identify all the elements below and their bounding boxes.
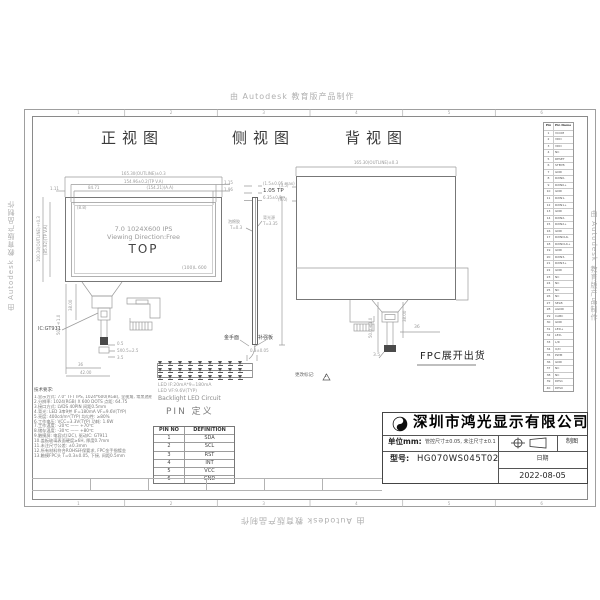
pin-number: 30: [544, 320, 554, 326]
led-icon: [228, 361, 233, 367]
pin-def-signal: RST: [185, 452, 234, 459]
pin-table-row: 20 RXIN3-: [544, 254, 573, 261]
led-icon: [158, 361, 163, 367]
pin-definition-table: PIN NO DEFINITION 1 SDA 2 SCL 3 RST: [153, 426, 235, 484]
zone-digit: 1: [32, 500, 125, 507]
pin-table-row: 33 L/R: [544, 339, 573, 346]
title-block-line: [498, 468, 587, 469]
dim-front-right-stub2: 1.96: [224, 188, 233, 192]
viewing-direction-text: Viewing Direction:Free: [65, 234, 222, 241]
pin-def-number: 3: [154, 452, 185, 459]
led-icon: [238, 368, 243, 374]
pin-name: GND: [554, 248, 573, 254]
led-icon: [188, 368, 193, 374]
pin-number: 21: [544, 261, 554, 267]
led-icon: [188, 361, 193, 367]
pin-def-row: 6 GND: [154, 475, 234, 483]
pin-table-row: 6 STBYB: [544, 162, 573, 169]
pin-number: 6: [544, 163, 554, 169]
dim-side-bottom: 0.3±0.05: [250, 349, 269, 353]
pin-name: PWM: [554, 353, 573, 359]
zone-digit: 4: [310, 109, 403, 116]
dim-back-left1: (3.5): [279, 184, 288, 188]
back-view-title: 背视图: [345, 130, 408, 147]
pin-table-row: 12 RXIN1+: [544, 202, 573, 209]
pin-table-row: 27 SELB: [544, 300, 573, 307]
zone-digit: 3: [217, 109, 310, 116]
pin-table-row: 34 U/D: [544, 346, 573, 353]
pin-name: RESET: [554, 157, 573, 163]
unit-label: 单位mm:: [388, 438, 422, 446]
pin-table-row: 11 RXIN1-: [544, 195, 573, 202]
pin-number: 40: [544, 386, 554, 392]
pin-table-row: 3 VDD: [544, 143, 573, 150]
drawing-sheet: 由 Autodesk 教育版产品制作 由 Autodesk 教育版产品制作 由 …: [0, 0, 600, 600]
dim-front-fpc-05: 0.5: [117, 342, 123, 346]
company-logo: [392, 416, 408, 432]
pin-number: 13: [544, 209, 554, 215]
dim-front-fpc-36: 36: [78, 363, 83, 367]
pin-number: 36: [544, 360, 554, 366]
pin-table-row: 26 NC: [544, 293, 573, 300]
front-corner-note: (8.8): [77, 206, 86, 210]
led-icon: [168, 368, 173, 374]
zone-digit: 6: [495, 109, 588, 116]
pin-name: GND: [554, 209, 573, 215]
pin-number: 29: [544, 314, 554, 320]
pin-name: NC: [554, 150, 573, 156]
pin-table-row: 23 NC: [544, 274, 573, 281]
pin-table-row: 31 LED+: [544, 326, 573, 333]
pin-number: 32: [544, 333, 554, 339]
pin-name: GND: [554, 268, 573, 274]
pin-number: 17: [544, 235, 554, 241]
led-icon: [198, 368, 203, 374]
backlight-circuit-caption: Backlight LED Circuit: [158, 396, 221, 403]
pin-name: RXIN2+: [554, 222, 573, 228]
pin-number: 5: [544, 157, 554, 163]
front-view-title: 正视图: [101, 130, 164, 147]
dim-front-v-va: (85.92)(TP V.A): [44, 202, 48, 277]
pin-table-row: 8 RXIN0-: [544, 175, 573, 182]
pin-name: NC: [554, 275, 573, 281]
dim-back-fpc-36: 36: [414, 326, 420, 331]
dim-front-fpc-38: 38.00: [69, 292, 73, 318]
pin-name: RXIN0-: [554, 176, 573, 182]
revision-mark-number: 1: [325, 375, 327, 379]
pin-table-col2-header: Pin Name: [554, 123, 573, 130]
fpc-unfolded-note: FPC展开出货: [420, 351, 486, 362]
pin-def-row: 3 RST: [154, 451, 234, 459]
dim-front-aa-mid: 84.71: [88, 186, 99, 190]
revision-strip-line: [32, 478, 382, 479]
dim-front-fpc-42: 42.00: [80, 371, 91, 375]
led-row: [158, 360, 252, 367]
pin-table-row: 38 NC: [544, 372, 573, 379]
pin-name: L/R: [554, 340, 573, 346]
pin-number: 28: [544, 307, 554, 313]
pin-name: VDD: [554, 137, 573, 143]
led-icon: [208, 368, 213, 374]
label-backlight-thickness: T=3.35: [263, 222, 278, 226]
led-row: [158, 367, 252, 374]
dim-front-right-stub1: 1.15: [224, 181, 233, 185]
revision-mark-label: 更改标记:: [295, 374, 315, 379]
led-icon: [228, 368, 233, 374]
pin-def-number: 4: [154, 460, 185, 467]
revision-strip-divider: [90, 478, 91, 490]
pin-def-col2-header: DEFINITION: [185, 427, 234, 434]
led-icon: [178, 368, 183, 374]
dim-back-fpc-35: 3.5: [373, 354, 380, 359]
pin-table-row: 9 RXIN0+: [544, 182, 573, 189]
pin-def-col1-header: PIN NO: [154, 427, 185, 434]
led-icon: [158, 368, 163, 374]
pin-name: RXIN3-: [554, 255, 573, 261]
tolerance-value: 管控尺寸±0.05, 未注尺寸±0.1: [425, 440, 496, 446]
revision-strip-divider: [206, 478, 207, 490]
dim-front-left-stub: 1.11: [50, 187, 59, 191]
pin-name: RXIN2-: [554, 216, 573, 222]
pin-number: 25: [544, 288, 554, 294]
pin-number: 26: [544, 294, 554, 300]
led-row: [158, 374, 252, 381]
dim-back-outline: 165.30(OUTLINE)±0.3: [296, 161, 456, 165]
pin-def-number: 2: [154, 443, 185, 450]
pin-table-row: 24 NC: [544, 280, 573, 287]
panel-corner-note: (100)L 600: [182, 267, 207, 272]
led-icon: [208, 375, 213, 381]
watermark-left: 由 Autodesk 教育版产品制作: [6, 200, 16, 311]
model-number: HG070WS045T02: [417, 455, 499, 464]
pin-number: 10: [544, 189, 554, 195]
led-icon: [218, 375, 223, 381]
pin-number: 11: [544, 196, 554, 202]
zone-digit: 6: [495, 500, 588, 507]
pin-number: 3: [544, 144, 554, 150]
zone-ruler-top: 123456: [32, 109, 588, 116]
pin-table-row: 35 PWM: [544, 352, 573, 359]
pin-name: DPS0: [554, 386, 573, 392]
dim-back-fpc-38: 38.00: [403, 303, 407, 329]
pin-name: U/D: [554, 347, 573, 353]
led-icon: [168, 375, 173, 381]
zone-ruler-bottom: 123456: [32, 500, 588, 507]
pin-name: RXINCLK-: [554, 235, 573, 241]
side-view-title: 侧视图: [232, 130, 295, 147]
pin-name: LED+: [554, 327, 573, 333]
pin-def-row: 4 INT: [154, 459, 234, 467]
drawn-by-label: 制图: [557, 439, 587, 446]
pin-table-row: 39 DPS1: [544, 378, 573, 385]
pin-table-row: 15 RXIN2+: [544, 221, 573, 228]
pin-table-row: 37 NC: [544, 365, 573, 372]
pin-number: 15: [544, 222, 554, 228]
interface-pin-table: Pin No. Pin Name 1 VCOM 2 VDD 3 VDD: [543, 122, 574, 392]
dim-front-v-outline: 100.30(OUTLINE)±0.3: [37, 197, 41, 282]
pin-number: 22: [544, 268, 554, 274]
zone-digit: 4: [310, 500, 403, 507]
led-icon: [208, 361, 213, 367]
pin-name: GND: [554, 170, 573, 176]
note-line: 13.触摸FPC头 T=0.3±0.05, 下接, 间距0.5mm: [34, 454, 152, 459]
model-label: 型号:: [390, 455, 409, 464]
pin-number: 2: [544, 137, 554, 143]
pin-table-row: 32 LED-: [544, 332, 573, 339]
pin-name: VDD: [554, 144, 573, 150]
pin-definition-title: PIN 定义: [166, 408, 214, 418]
led-icon: [238, 375, 243, 381]
led-icon: [188, 375, 193, 381]
dim-front-tp: 154.96±0.2(TP V.A): [71, 180, 216, 184]
pin-number: 39: [544, 379, 554, 385]
pin-number: 9: [544, 183, 554, 189]
pin-name: DPS1: [554, 379, 573, 385]
pin-table-row: 18 RXINCLK+: [544, 241, 573, 248]
pin-number: 18: [544, 242, 554, 248]
title-block-line: [383, 451, 587, 452]
zone-digit: 2: [125, 109, 218, 116]
backlight-led-circuit: [158, 360, 252, 381]
zone-digit: 5: [403, 500, 496, 507]
pin-name: GND: [554, 189, 573, 195]
led-icon: [238, 361, 243, 367]
date-label: 日期: [498, 456, 587, 463]
dim-back-left2: (9.0): [278, 198, 287, 202]
led-rail-right: [252, 363, 253, 378]
watermark-bottom: 由 Autodesk 教育版产品制作: [240, 515, 364, 526]
pin-def-row: 5 VCC: [154, 467, 234, 475]
pin-table-row: 4 NC: [544, 149, 573, 156]
pin-name: NC: [554, 373, 573, 379]
back-outline-rect: [296, 176, 456, 300]
label-stiffener: 补强板: [258, 336, 273, 342]
pin-table-rows: 1 VCOM 2 VDD 3 VDD 4 NC: [544, 130, 573, 392]
pin-name: SELB: [554, 301, 573, 307]
pin-number: 16: [544, 229, 554, 235]
pin-def-number: 5: [154, 468, 185, 475]
pin-def-row: 2 SCL: [154, 442, 234, 450]
date-value: 2022-08-05: [498, 472, 587, 481]
led-icon: [198, 361, 203, 367]
pin-table-row: 36 GND: [544, 359, 573, 366]
zone-digit: 1: [32, 109, 125, 116]
pin-table-row: 28 AGND: [544, 306, 573, 313]
pin-number: 33: [544, 340, 554, 346]
led-icon: [158, 375, 163, 381]
pin-def-signal: INT: [185, 460, 234, 467]
pin-table-row: 25 NC: [544, 287, 573, 294]
revision-strip-divider: [264, 478, 265, 490]
pin-name: NC: [554, 294, 573, 300]
watermark-top: 由 Autodesk 教育版产品制作: [230, 91, 354, 102]
pin-number: 20: [544, 255, 554, 261]
pin-table-row: 2 VDD: [544, 136, 573, 143]
pin-def-header-row: PIN NO DEFINITION: [154, 427, 234, 434]
title-block: 深圳市鸿光显示有限公司 单位mm: 管控尺寸±0.05, 未注尺寸±0.1 型号…: [382, 412, 588, 484]
pin-name: RXIN0+: [554, 183, 573, 189]
pin-def-row: 1 SDA: [154, 434, 234, 442]
pin-table-row: 30 GND: [544, 319, 573, 326]
pin-name: CABC: [554, 314, 573, 320]
pin-def-signal: SDA: [185, 435, 234, 442]
pin-def-rows: 1 SDA 2 SCL 3 RST 4 INT: [154, 434, 234, 483]
led-icon: [218, 361, 223, 367]
pin-name: NC: [554, 288, 573, 294]
pin-table-row: 5 RESET: [544, 156, 573, 163]
technical-notes: 1.显示方式: 7.0" TFT IPS, 1024*600(RGB), 全视角…: [34, 395, 152, 459]
label-backlight: 背光源: [263, 216, 275, 220]
revision-strip-divider: [148, 478, 149, 490]
pin-number: 14: [544, 216, 554, 222]
pin-number: 19: [544, 248, 554, 254]
zone-digit: 5: [403, 109, 496, 116]
pin-table-row: 1 VCOM: [544, 130, 573, 137]
pin-table-row: 13 GND: [544, 208, 573, 215]
pin-number: 27: [544, 301, 554, 307]
label-gold-finger-side: 金手面: [224, 336, 239, 342]
dim-front-aa: (154.21)(A.A): [110, 186, 210, 190]
pin-name: AGND: [554, 307, 573, 313]
pin-table-row: 16 GND: [544, 228, 573, 235]
pin-table-row: 7 GND: [544, 169, 573, 176]
led-icon: [178, 375, 183, 381]
pin-name: NC: [554, 366, 573, 372]
pin-number: 34: [544, 347, 554, 353]
projection-symbol-icon: [510, 437, 550, 449]
pin-table-row: 17 RXINCLK-: [544, 234, 573, 241]
top-marking: TOP: [65, 243, 222, 256]
pin-table-row: 19 GND: [544, 247, 573, 254]
pin-name: RXINCLK+: [554, 242, 573, 248]
led-icon: [228, 375, 233, 381]
dim-front-fpc-35: 3.5: [117, 356, 123, 360]
pin-number: 12: [544, 203, 554, 209]
pin-table-row: 10 GND: [544, 188, 573, 195]
led-icon: [218, 368, 223, 374]
revision-strip-divider: [322, 478, 323, 490]
dim-side-tp: 1.05 TP: [263, 188, 284, 194]
notes-title: 技术要求:: [34, 389, 54, 394]
pin-number: 31: [544, 327, 554, 333]
revision-strip-line: [32, 490, 382, 491]
led-icon: [178, 361, 183, 367]
zone-digit: 3: [217, 500, 310, 507]
pin-number: 35: [544, 353, 554, 359]
pin-number: 8: [544, 176, 554, 182]
pin-name: GND: [554, 320, 573, 326]
side-stack-layer-line: [255, 198, 256, 344]
pin-name: STBYB: [554, 163, 573, 169]
dim-front-fpc-pitch: 5X0.5=2.5: [117, 349, 138, 353]
pin-table-row: 40 DPS0: [544, 385, 573, 392]
pin-table-row: 29 CABC: [544, 313, 573, 320]
pin-name: GND: [554, 360, 573, 366]
pin-number: 1: [544, 131, 554, 137]
zone-digit: 2: [125, 500, 218, 507]
pin-table-row: 14 RXIN2-: [544, 215, 573, 222]
pin-def-signal: SCL: [185, 443, 234, 450]
led-rail-left: [157, 363, 158, 378]
pin-name: RXIN1+: [554, 203, 573, 209]
dim-front-outline: 165.30(OUTLINE)±0.3: [65, 172, 222, 176]
pin-name: RXIN1-: [554, 196, 573, 202]
pin-number: 7: [544, 170, 554, 176]
dim-front-fpc-length: 50.0±1.0: [57, 305, 61, 345]
pin-name: LED-: [554, 333, 573, 339]
pin-name: VCOM: [554, 131, 573, 137]
dim-back-fpc-length: 50.0±1.0: [369, 310, 373, 346]
pin-number: 4: [544, 150, 554, 156]
pin-table-row: 22 GND: [544, 267, 573, 274]
pin-table-header-row: Pin No. Pin Name: [544, 123, 573, 130]
label-foam-thickness: T=0.3: [230, 226, 242, 230]
label-foam: 泡棉胶: [228, 220, 240, 224]
pin-number: 24: [544, 281, 554, 287]
led-icon: [168, 361, 173, 367]
pin-number: 38: [544, 373, 554, 379]
pin-table-row: 21 RXIN3+: [544, 260, 573, 267]
pin-def-number: 1: [154, 435, 185, 442]
pin-name: GND: [554, 229, 573, 235]
pin-name: NC: [554, 281, 573, 287]
led-icon: [198, 375, 203, 381]
pin-table-col1-header: Pin No.: [544, 123, 554, 130]
pin-number: 37: [544, 366, 554, 372]
pin-def-signal: VCC: [185, 468, 234, 475]
company-name: 深圳市鸿光显示有限公司: [413, 416, 589, 432]
pin-number: 23: [544, 275, 554, 281]
pin-name: RXIN3+: [554, 261, 573, 267]
